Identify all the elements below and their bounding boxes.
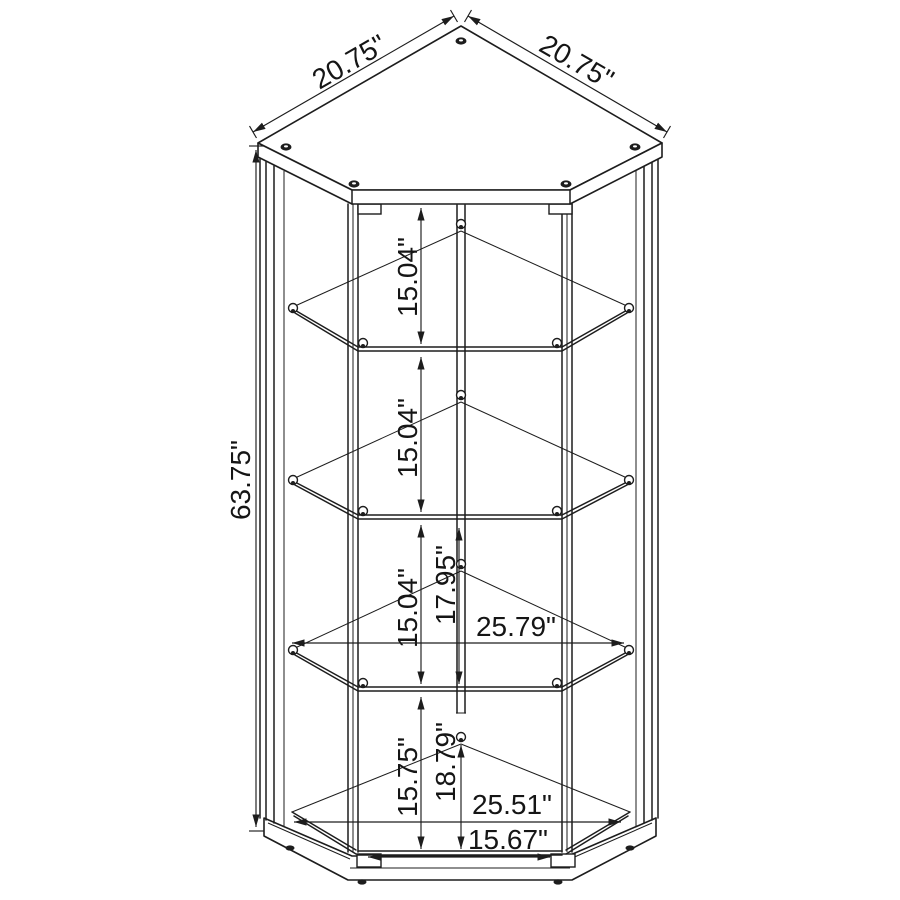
dim-back-spacing-lower-shelf-label: 17.95": [430, 545, 461, 625]
shelf-peg: [553, 679, 562, 689]
dim-shelf-spacing-2-label: 15.04": [392, 398, 423, 478]
dim-shelf-spacing-3-label: 15.04": [392, 568, 423, 648]
shelf-peg: [625, 304, 634, 314]
shelf-peg: [289, 304, 298, 314]
screw-dot: [349, 180, 360, 187]
dimension-door-opening-width: 15.67": [368, 824, 550, 857]
shelf-peg: [553, 507, 562, 517]
shelf-peg: [553, 339, 562, 349]
screw-dot: [456, 37, 467, 44]
cabinet-foot: [358, 879, 367, 884]
shelf-peg: [359, 339, 368, 349]
shelf-peg: [625, 646, 634, 656]
curio-cabinet-dimension-diagram: 20.75" 20.75" 63.75" 15.04" 15.04" 15.04…: [0, 0, 900, 900]
dimension-shelf-spacing-1: 15.04": [392, 208, 423, 344]
shelf-1: [289, 220, 634, 352]
dimension-bottom-section-front: 15.75": [392, 697, 423, 849]
door-bracket-bottom-left: [357, 854, 381, 867]
front-right-post: [562, 204, 572, 852]
dim-shelf-spacing-1-label: 15.04": [392, 237, 423, 317]
dim-door-opening-width-label: 15.67": [468, 824, 548, 855]
top-panel: [258, 26, 662, 204]
door-hinge-top-left: [358, 204, 381, 214]
shelf-peg: [359, 679, 368, 689]
dimension-bottom-section-back: 18.79": [430, 722, 461, 849]
cabinet-foot: [554, 879, 563, 884]
cabinet-foot: [626, 845, 635, 850]
door-hinge-top-right: [549, 204, 572, 214]
dim-overall-height-label: 63.75": [225, 440, 256, 520]
dimension-shelf-spacing-2: 15.04": [392, 357, 423, 512]
dim-bottom-section-back-label: 18.79": [430, 722, 461, 802]
dimension-overall-height: 63.75": [225, 146, 264, 831]
shelf-peg: [289, 646, 298, 656]
screw-dot: [281, 143, 292, 150]
shelf-3: [289, 560, 634, 692]
shelf-2: [289, 391, 634, 520]
cabinet-foot: [286, 845, 295, 850]
dim-interior-width-base-label: 25.51": [472, 789, 552, 820]
screw-dot: [630, 143, 641, 150]
shelf-peg: [625, 476, 634, 486]
glass-door: [357, 204, 575, 867]
shelf-peg: [457, 220, 466, 230]
center-back-post: [456, 205, 466, 713]
door-bracket-bottom-right: [551, 854, 575, 867]
dim-bottom-section-front-label: 15.75": [392, 737, 423, 817]
left-side-frame: [260, 159, 284, 826]
screw-dot: [561, 180, 572, 187]
shelf-peg: [457, 391, 466, 401]
shelf-peg: [359, 507, 368, 517]
shelf-peg: [289, 476, 298, 486]
dimension-shelf-spacing-3: 15.04": [392, 525, 423, 684]
front-left-post: [348, 204, 358, 852]
right-side-frame: [636, 159, 658, 826]
dim-interior-width-shelf-label: 25.79": [476, 611, 556, 642]
cabinet-drawing-svg: 20.75" 20.75" 63.75" 15.04" 15.04" 15.04…: [0, 0, 900, 900]
